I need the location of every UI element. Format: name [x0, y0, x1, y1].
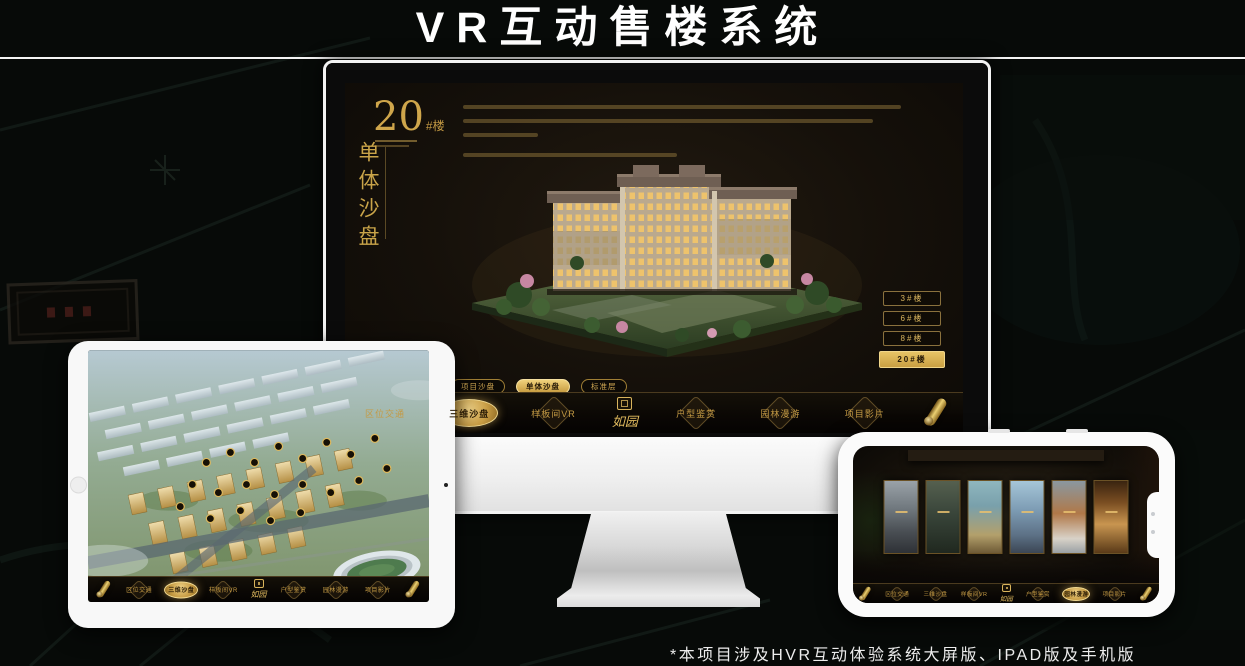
scroll-menu-icon[interactable]: [923, 397, 949, 429]
brand-logo: 如园: [251, 579, 267, 600]
phone-nav-bar: 区位交通 三维沙盘 样板间VR 如园 户型鉴赏: [853, 583, 1159, 603]
nav-item-location-traffic[interactable]: 区位交通: [124, 577, 154, 602]
nav-item-location-traffic[interactable]: 区位交通: [884, 584, 910, 603]
brand-logo-text: 如园: [1000, 593, 1013, 603]
title-underline: [0, 57, 1245, 59]
nav-item-project-film[interactable]: 项目影片: [1102, 584, 1128, 603]
scroll-roll: [924, 397, 948, 428]
floor-button-20-active[interactable]: 20#楼: [879, 351, 945, 368]
nav-item-label: 样板间VR: [209, 585, 238, 594]
brand-logo: 如园: [612, 397, 638, 430]
unit-vertical-title: 单体沙盘: [353, 141, 383, 253]
nav-item-garden-roam[interactable]: 园林漫游: [1063, 584, 1089, 603]
nav-item-label: 三维沙盘: [924, 590, 948, 598]
nav-item-showroom-vr[interactable]: 样板间VR: [961, 584, 988, 603]
brand-logo-text: 如园: [612, 411, 638, 430]
nav-item-unit-gallery[interactable]: 户型鉴赏: [670, 393, 722, 433]
nav-item-unit-gallery[interactable]: 户型鉴赏: [1025, 584, 1051, 603]
nav-item-label: 项目影片: [365, 585, 391, 594]
nav-item-label: 项目影片: [845, 407, 885, 420]
floor-selector: 3#楼 6#楼 8#楼 20#楼: [879, 291, 945, 373]
floor-button-6[interactable]: 6#楼: [883, 311, 941, 326]
interior-floor: [853, 550, 1159, 584]
nav-item-showroom-vr[interactable]: 样板间VR: [528, 393, 580, 433]
nav-item-label: 区位交通: [365, 407, 405, 420]
brand-logo: 如园: [1000, 584, 1013, 603]
unit-title-panel: 20#楼: [373, 97, 453, 149]
gallery-panel[interactable]: [884, 480, 919, 554]
page-title: VR互动售楼系统: [0, 0, 1245, 56]
nav-item-label: 园林漫游: [760, 407, 800, 420]
scroll-roll: [1140, 585, 1152, 600]
tablet-home-button[interactable]: [70, 476, 87, 493]
nav-item-showroom-vr[interactable]: 样板间VR: [208, 577, 238, 602]
unit-suffix: #楼: [426, 119, 445, 133]
brand-seal-icon: [1002, 584, 1011, 592]
gallery-panel[interactable]: [926, 480, 961, 554]
interior-ceiling-beam: [908, 450, 1104, 461]
scroll-gallery: [884, 480, 1129, 554]
phone-notch: [1147, 492, 1159, 558]
gallery-panel[interactable]: [1094, 480, 1129, 554]
phone-camera-icon: [1151, 512, 1155, 516]
tablet-camera-icon: [444, 483, 448, 487]
masterplan-aerial-render: [88, 350, 429, 602]
nav-item-label: 区位交通: [885, 590, 909, 598]
brand-logo-text: 如园: [251, 589, 267, 600]
tablet-nav-bar: 区位交通 三维沙盘 样板间VR 如园 户型鉴赏: [88, 576, 429, 602]
nav-item-label: 户型鉴赏: [1026, 590, 1050, 598]
nav-item-3d-sandtable[interactable]: 三维沙盘: [923, 584, 949, 603]
scroll-roll: [406, 579, 421, 597]
building-render-3d: [457, 135, 877, 375]
promo-canvas: VR互动售楼系统 20#楼 单体沙盘: [0, 0, 1245, 666]
nav-item-label: 区位交通: [126, 585, 152, 594]
nav-item-label: 户型鉴赏: [676, 407, 716, 420]
floor-button-3[interactable]: 3#楼: [883, 291, 941, 306]
scroll-roll: [97, 579, 112, 597]
nav-item-label: 户型鉴赏: [281, 585, 307, 594]
nav-item-garden-roam[interactable]: 园林漫游: [754, 393, 806, 433]
brand-seal-icon: [617, 397, 632, 410]
scroll-roll: [859, 585, 871, 600]
description-line: [463, 119, 873, 123]
scroll-menu-icon[interactable]: [96, 580, 112, 600]
phone-device: 区位交通 三维沙盘 样板间VR 如园 户型鉴赏: [838, 432, 1175, 617]
description-line: [463, 105, 901, 109]
gallery-panel[interactable]: [968, 480, 1003, 554]
unit-number: 20: [373, 94, 424, 140]
nav-item-unit-gallery[interactable]: 户型鉴赏: [279, 577, 309, 602]
scroll-menu-icon[interactable]: [405, 580, 421, 600]
scroll-menu-icon[interactable]: [1140, 586, 1153, 602]
footer-caption: *本项目涉及HVR互动体验系统大屏版、IPAD版及手机版: [670, 641, 1136, 665]
scroll-menu-icon[interactable]: [859, 586, 872, 602]
nav-item-3d-sandtable[interactable]: 三维沙盘: [166, 577, 196, 602]
gallery-panel[interactable]: [1010, 480, 1045, 554]
phone-app-screen: 区位交通 三维沙盘 样板间VR 如园 户型鉴赏: [853, 446, 1159, 603]
nav-item-label: 样板间VR: [961, 590, 988, 598]
nav-item-project-film[interactable]: 项目影片: [363, 577, 393, 602]
nav-item-project-film[interactable]: 项目影片: [839, 393, 891, 433]
phone-volume-button[interactable]: [988, 429, 1010, 433]
tablet-device: 项目沙盘 单体沙盘 标准层 区位交通 三维沙盘 样板间VR: [68, 341, 455, 628]
unit-vertical-rule: [385, 147, 386, 239]
gallery-panel[interactable]: [1052, 480, 1087, 554]
floor-button-8[interactable]: 8#楼: [883, 331, 941, 346]
nav-item-label: 园林漫游: [1064, 590, 1088, 598]
nav-item-label: 样板间VR: [531, 407, 576, 420]
nav-item-label: 三维沙盘: [449, 407, 489, 420]
brand-seal-icon: [254, 579, 264, 588]
nav-item-label: 园林漫游: [323, 585, 349, 594]
phone-speaker-icon: [1151, 530, 1155, 534]
nav-item-garden-roam[interactable]: 园林漫游: [321, 577, 351, 602]
nav-item-label: 项目影片: [1103, 590, 1127, 598]
tablet-app-screen: 项目沙盘 单体沙盘 标准层 区位交通 三维沙盘 样板间VR: [88, 350, 429, 602]
nav-item-label: 三维沙盘: [168, 585, 194, 594]
phone-power-button[interactable]: [1066, 429, 1088, 433]
